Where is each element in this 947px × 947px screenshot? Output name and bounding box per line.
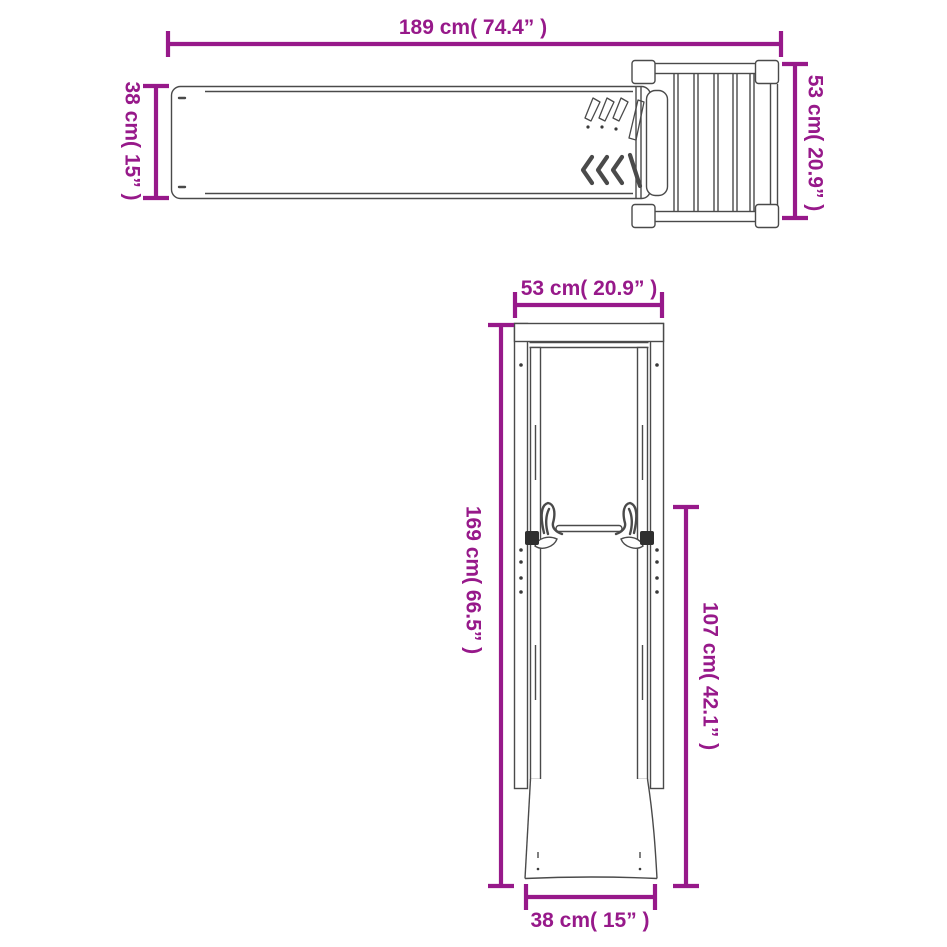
left-clamp — [525, 531, 539, 545]
dim-label-length: 189 cm( 74.4” ) — [399, 16, 547, 39]
dim-label-platform-depth: 53 cm( 20.9” ) — [803, 75, 826, 212]
slide-base — [525, 779, 657, 879]
dim-label-slide-width: 38 cm( 15” ) — [120, 81, 143, 200]
dim-label-base-width: 38 cm( 15” ) — [530, 909, 649, 932]
dim-line-total-height — [488, 325, 514, 886]
dim-line-base-width — [526, 884, 655, 910]
platform-entry-rail — [636, 86, 668, 199]
handle-crossbar — [556, 526, 622, 532]
front-view-drawing — [515, 324, 664, 879]
left-post — [515, 324, 528, 789]
right-clamp — [640, 531, 654, 545]
product-dimension-diagram: 189 cm( 74.4” ) 38 cm( 15” ) 53 cm( 20.9… — [0, 0, 947, 947]
left-slide-rail — [531, 348, 541, 780]
dim-label-frame-width: 53 cm( 20.9” ) — [521, 277, 658, 300]
deck-planks — [674, 74, 754, 211]
right-post — [651, 324, 664, 789]
dim-line-slide-width — [143, 86, 169, 198]
top-view-drawing — [172, 61, 779, 228]
right-slide-rail — [638, 348, 648, 780]
dim-label-total-height: 169 cm( 66.5” ) — [461, 506, 484, 654]
top-bar — [515, 324, 664, 342]
dim-label-slide-height: 107 cm( 42.1” ) — [698, 602, 721, 750]
dim-line-slide-height — [673, 507, 699, 886]
slide-top-view — [172, 87, 651, 199]
